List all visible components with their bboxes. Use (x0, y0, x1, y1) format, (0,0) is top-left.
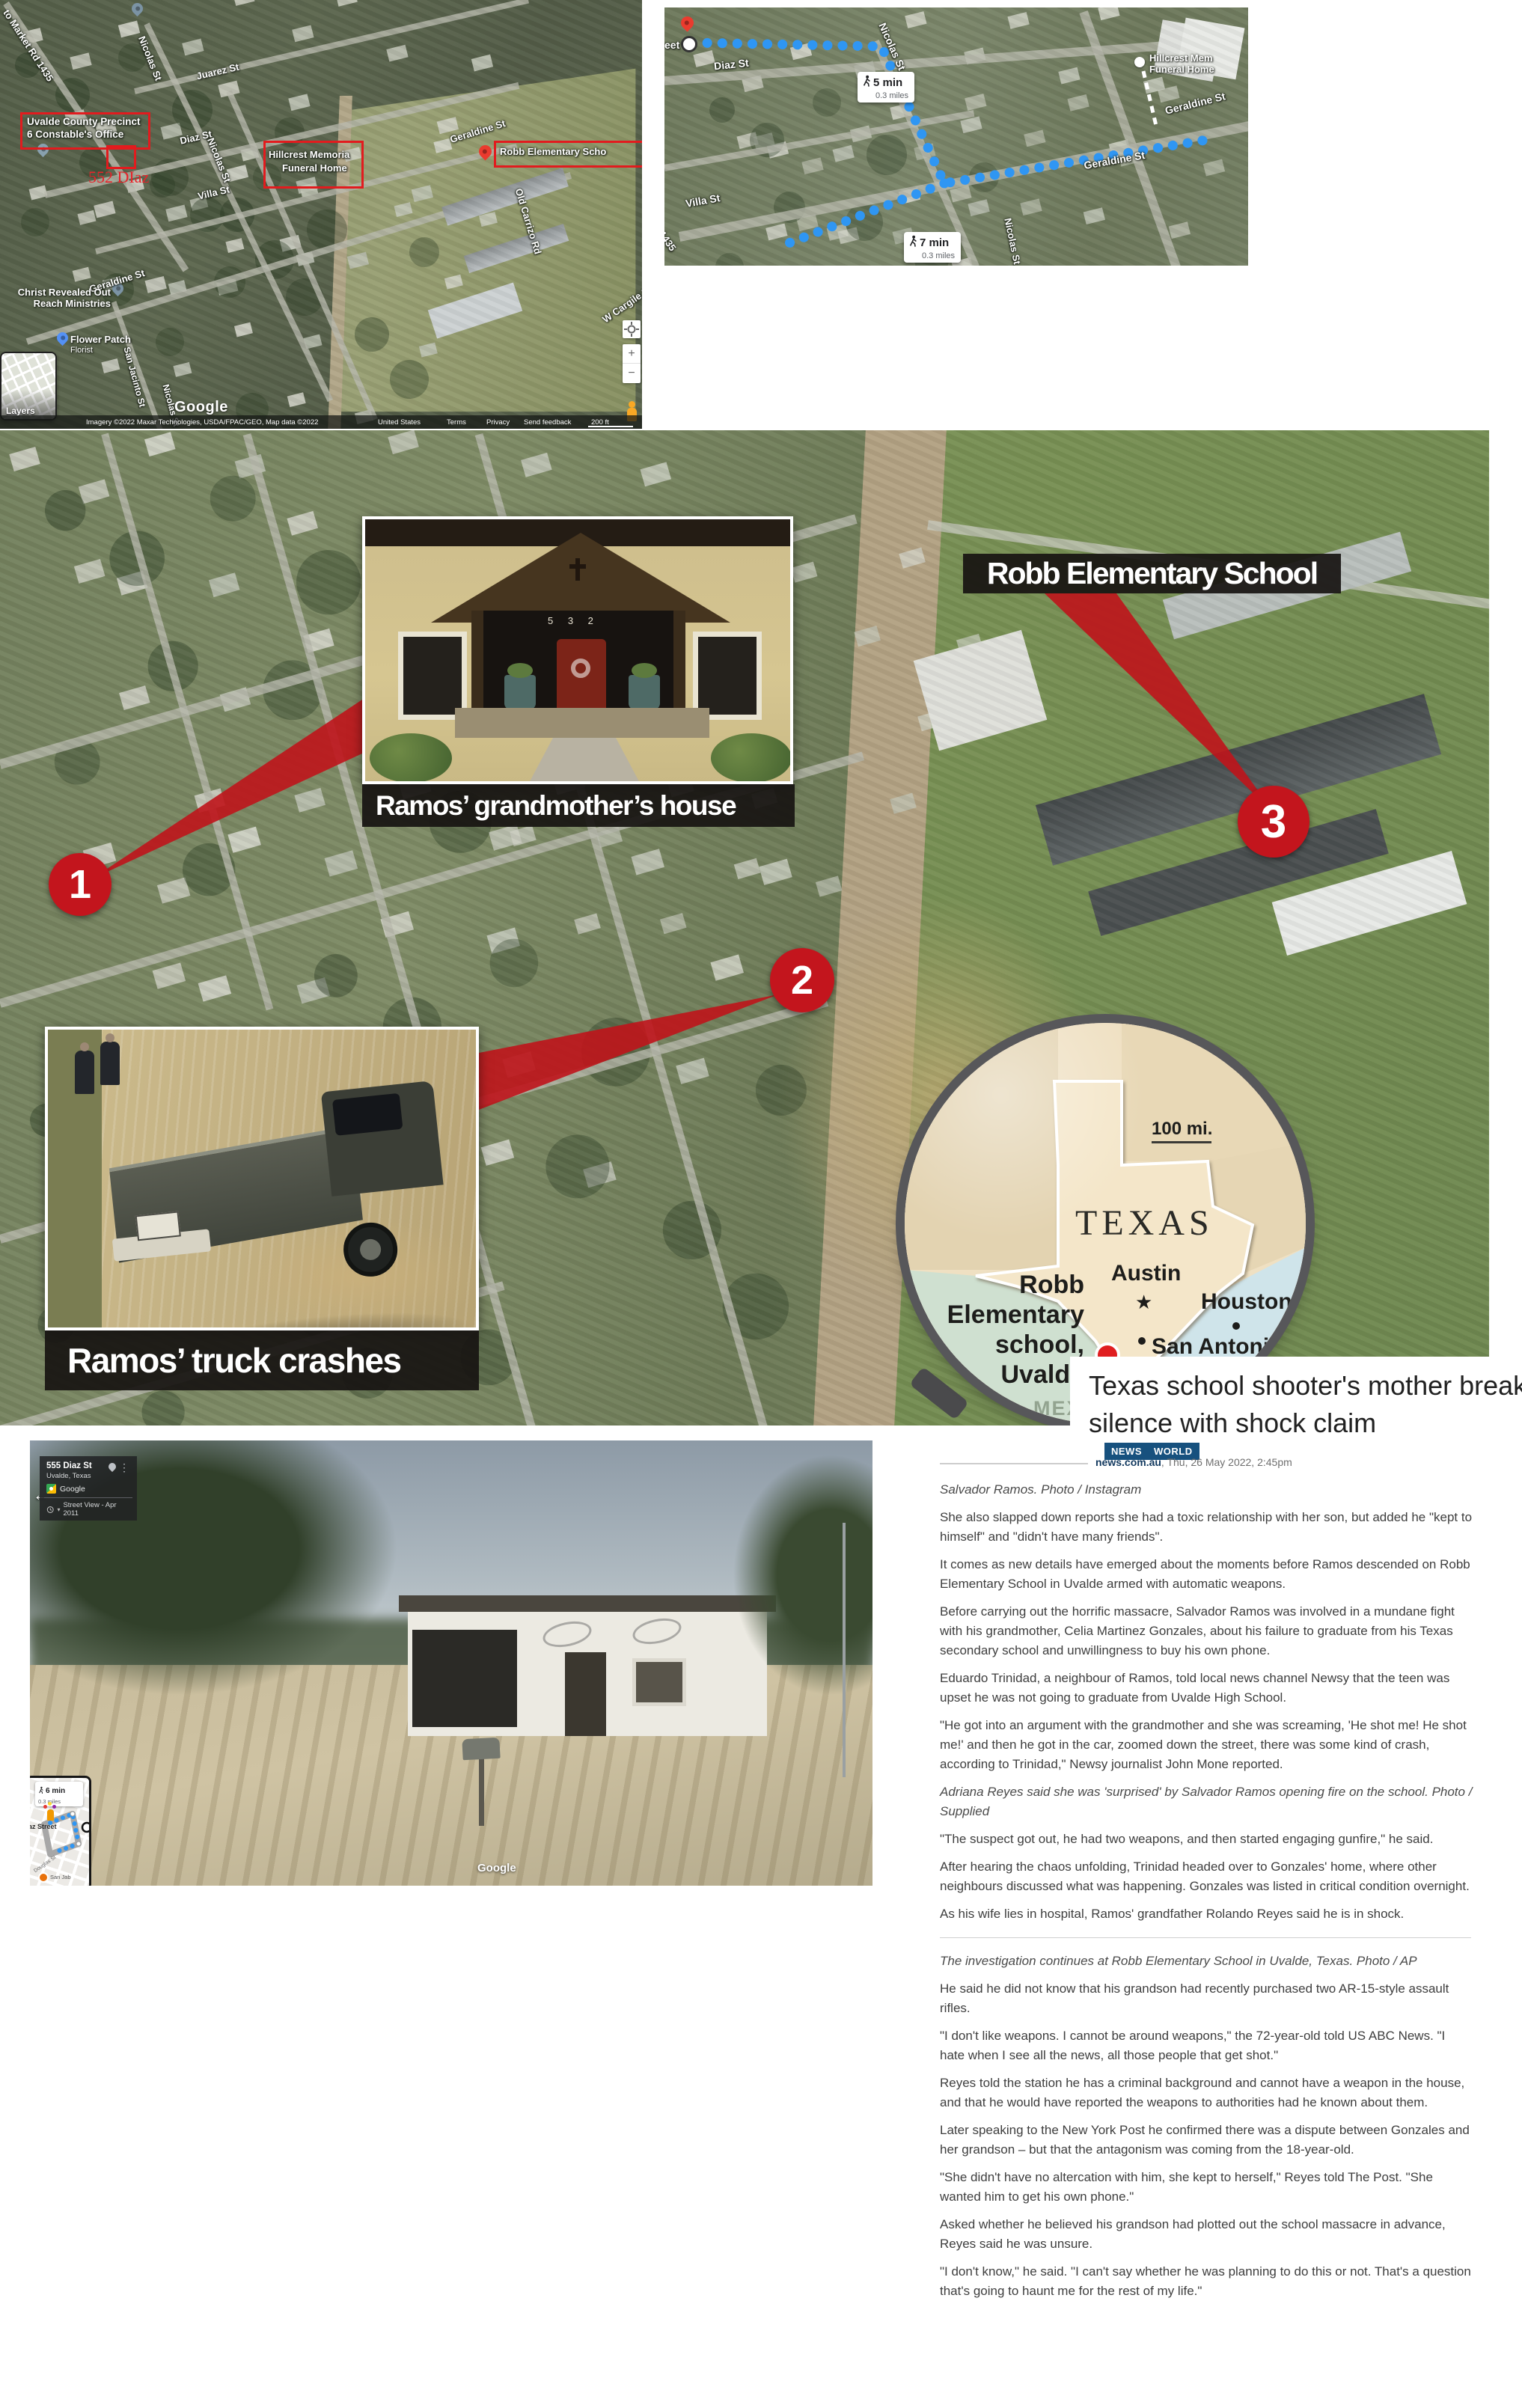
history-chevron-icon[interactable]: ▾ (57, 1506, 60, 1513)
street-view-date: Street View - Apr 2011 (63, 1501, 130, 1518)
window (693, 632, 762, 720)
feedback-link[interactable]: Send feedback (524, 418, 571, 427)
street-view-photo[interactable]: ← 555 Diaz St Uvalde, Texas ⋮ Google ▾ S… (30, 1440, 872, 1886)
walk-time: 6 min (46, 1787, 65, 1795)
article-divider (940, 1937, 1471, 1938)
utility-pole (843, 1523, 846, 1777)
address-subtitle: Uvalde, Texas (46, 1472, 130, 1480)
house-number: 5 3 2 (548, 615, 599, 626)
houston-label: Houston (1201, 1289, 1292, 1315)
wreath-decoration (571, 658, 590, 678)
walk-time-badge-5min[interactable]: 5 min 0.3 miles (858, 72, 914, 103)
partial-street-label: eet (664, 39, 679, 51)
planter (504, 675, 536, 709)
license-plate (135, 1211, 181, 1241)
photo-caption: Salvador Ramos. Photo / Instagram (940, 1480, 1473, 1500)
cross-decoration (575, 558, 580, 581)
flower-patch-label: Flower Patch Florist (70, 334, 131, 356)
my-location-button[interactable] (623, 320, 641, 338)
planter (629, 675, 660, 709)
hillcrest-line1: Hillcrest Memoria (269, 149, 349, 160)
article-paragraph: As his wife lies in hospital, Ramos' gra… (940, 1904, 1473, 1924)
street-view-info-card: 555 Diaz St Uvalde, Texas ⋮ Google ▾ Str… (40, 1456, 137, 1521)
card-divider (44, 1497, 132, 1498)
minimap-poi-label: San Jab (50, 1874, 71, 1880)
school-callout-text: Robb Elementary School (987, 556, 1317, 591)
article-paragraph: "I don't like weapons. I cannot be aroun… (940, 2026, 1473, 2065)
photo-detail (412, 1630, 517, 1727)
grandmother-house-box (106, 145, 136, 169)
google-watermark: Google (477, 1862, 516, 1874)
pegman-icon[interactable] (47, 1809, 54, 1821)
page: to Market Rd 1435 Nicolas St Juarez St D… (0, 0, 1522, 2408)
robb-school-box-label: Robb Elementary Scho (500, 146, 606, 157)
police-officer (75, 1051, 94, 1094)
walk-distance: 0.3 miles (38, 1798, 80, 1805)
layers-label: Layers (6, 406, 35, 416)
constable-office-line2: 6 Constable's Office (27, 129, 123, 140)
zoom-in-button[interactable]: + (623, 344, 641, 364)
marker-3: 3 (1238, 786, 1309, 858)
walking-route-path (664, 7, 1248, 266)
photo-detail (711, 733, 792, 783)
photo-detail (632, 1658, 686, 1706)
photo-detail (455, 708, 709, 738)
grandmother-callout-label: Ramos’ grandmother’s house (362, 784, 795, 827)
walk-distance: 0.3 miles (922, 251, 955, 260)
route-start-point (681, 36, 697, 52)
article-paragraph: Asked whether he believed his grandson h… (940, 2215, 1473, 2254)
photo-detail (673, 611, 685, 712)
walk-time-badge-7min[interactable]: 7 min 0.3 miles (904, 232, 961, 263)
inset-state-label: TEXAS (1075, 1203, 1214, 1244)
address-552-label: 552 DIaz (88, 168, 149, 187)
school-callout-label: Robb Elementary School (963, 554, 1341, 593)
article-paragraph: "The suspect got out, he had two weapons… (940, 1830, 1473, 1849)
source-name[interactable]: news.com.au (1095, 1456, 1161, 1468)
privacy-link[interactable]: Privacy (486, 418, 510, 427)
inset-scale-bar (1152, 1141, 1211, 1143)
time-history-icon (46, 1506, 54, 1514)
map-texture (0, 0, 642, 429)
zoom-out-button[interactable]: − (623, 364, 641, 382)
street-view-house (408, 1609, 767, 1736)
walk-time: 7 min (920, 236, 949, 249)
christ-line2: Reach Ministries (6, 298, 111, 309)
source-dateline: , Thu, 26 May 2022, 2:45pm (1161, 1456, 1292, 1468)
region-label: United States (378, 418, 421, 427)
photo-caption: The investigation continues at Robb Elem… (940, 1952, 1473, 1971)
christ-ministries-label: Christ Revealed Out Reach Ministries (6, 287, 111, 309)
grandmother-callout-text: Ramos’ grandmother’s house (376, 790, 736, 822)
marker-1: 1 (49, 853, 111, 916)
san-antonio-label: San Antonio (1152, 1334, 1283, 1360)
article-paragraph: "I don't know," he said. "I can't say wh… (940, 2262, 1473, 2301)
photo-detail (565, 1652, 606, 1736)
article-paragraph: Eduardo Trinidad, a neighbour of Ramos, … (940, 1669, 1473, 1708)
article-paragraph: He said he did not know that his grandso… (940, 1979, 1473, 2018)
marker-1-number: 1 (69, 861, 91, 908)
article-paragraph: She also slapped down reports she had a … (940, 1508, 1473, 1547)
marker-2-number: 2 (791, 957, 813, 1003)
pegman-icon (629, 401, 635, 408)
hillcrest-poi-dot (1134, 57, 1145, 67)
street-view-logo-icon (46, 1484, 56, 1494)
balloon-icon (43, 1805, 47, 1809)
inset-robb-line4: Uvalde (935, 1360, 1084, 1390)
article-paragraph: "She didn't have no altercation with him… (940, 2168, 1473, 2207)
photo-caption: Adriana Reyes said she was 'surprised' b… (940, 1782, 1473, 1821)
minimap-street-label: az Street (30, 1823, 57, 1830)
marker-2: 2 (770, 948, 834, 1012)
truck-callout-text: Ramos’ truck crashes (67, 1340, 401, 1381)
photo-detail (431, 533, 730, 623)
google-logo[interactable]: Google (174, 399, 228, 416)
graffiti (540, 1617, 593, 1651)
hillcrest-line2: Funeral Home (282, 162, 347, 174)
police-officer (100, 1042, 120, 1085)
photo-detail (528, 738, 641, 784)
inset-robb-label: Robb Elementary school, Uvalde (935, 1270, 1084, 1390)
walker-icon (38, 1785, 44, 1798)
annotated-aerial-map: Robb Elementary School 5 3 2 Ramos’ gran… (0, 430, 1489, 1425)
article-paragraph: Reyes told the station he has a criminal… (940, 2074, 1473, 2112)
article-paragraph: Before carrying out the horrific massacr… (940, 1602, 1473, 1660)
balloon-icon (52, 1805, 56, 1809)
inset-robb-line3: school, (935, 1330, 1084, 1360)
marker-3-number: 3 (1261, 795, 1286, 849)
austin-label: Austin (1111, 1261, 1181, 1286)
walk-time-badge-6min: 6 min 0.3 miles (35, 1782, 83, 1806)
grandmother-house-photo: 5 3 2 (362, 516, 793, 784)
austin-star-icon: ★ (1135, 1291, 1152, 1314)
zoom-control[interactable]: + − (623, 344, 641, 383)
walk-time: 5 min (873, 76, 902, 89)
street-view-minimap[interactable]: 6 min 0.3 miles az Street Douglas St San… (30, 1776, 91, 1886)
hillcrest-poi-line1: Hillcrest Mem (1149, 52, 1214, 64)
constable-office-box: Uvalde County Precinct 6 Constable's Off… (20, 112, 150, 150)
brand-label: Google (60, 1485, 85, 1494)
balloon-icon (48, 1802, 52, 1806)
hillcrest-box: Hillcrest Memoria Funeral Home (263, 141, 364, 189)
flower-line1: Flower Patch (70, 334, 131, 345)
article-paragraph: It comes as new details have emerged abo… (940, 1555, 1473, 1594)
truck-callout-label: Ramos’ truck crashes (45, 1330, 479, 1390)
photo-detail (370, 733, 452, 783)
houston-dot (1232, 1322, 1240, 1330)
article-body: Salvador Ramos. Photo / Instagram She al… (940, 1480, 1473, 2309)
walking-route-map[interactable]: eet Diaz St Nicolas St Nicolas St Villa … (664, 7, 1248, 266)
article-paragraph: Later speaking to the New York Post he c… (940, 2121, 1473, 2160)
source-row: news.com.au, Thu, 26 May 2022, 2:45pm (1095, 1456, 1292, 1468)
walk-distance: 0.3 miles (875, 91, 908, 100)
imagery-attribution: Imagery ©2022 Maxar Technologies, USDA/F… (86, 418, 318, 427)
layers-control[interactable]: Layers (0, 352, 57, 421)
orange-poi-icon (38, 1872, 49, 1883)
address-title: 555 Diaz St (46, 1461, 130, 1470)
photo-detail (471, 611, 483, 712)
headline-line2: silence with shock claim (1089, 1405, 1522, 1442)
terms-link[interactable]: Terms (447, 418, 466, 427)
more-menu-icon[interactable]: ⋮ (119, 1461, 129, 1474)
map-attribution-bar: Imagery ©2022 Maxar Technologies, USDA/F… (0, 415, 642, 429)
flower-line2: Florist (70, 345, 131, 356)
crashed-truck (103, 1078, 458, 1300)
hillcrest-poi-label: Hillcrest Mem Funeral Home (1149, 52, 1214, 75)
inset-robb-line1: Robb (935, 1270, 1084, 1300)
satellite-map-overview[interactable]: to Market Rd 1435 Nicolas St Juarez St D… (0, 0, 642, 429)
san-antonio-dot (1138, 1337, 1146, 1345)
article-paragraph: After hearing the chaos unfolding, Trini… (940, 1857, 1473, 1896)
christ-line1: Christ Revealed Out (6, 287, 111, 298)
mailbox-post (479, 1755, 484, 1826)
truck-window (332, 1093, 403, 1136)
walker-icon (862, 75, 872, 91)
graffiti (630, 1614, 683, 1648)
hillcrest-poi-line2: Funeral Home (1149, 64, 1214, 75)
window (398, 632, 467, 720)
locate-icon (623, 320, 641, 338)
inset-scale-label: 100 mi. (1152, 1119, 1212, 1140)
constable-office-line1: Uvalde County Precinct (27, 116, 141, 127)
walker-icon (908, 235, 918, 251)
truck-crash-photo (45, 1027, 479, 1330)
headline-box: Texas school shooter's mother breaks sil… (1070, 1357, 1522, 1440)
article-paragraph: "He got into an argument with the grandm… (940, 1716, 1473, 1774)
photo-detail (399, 1595, 776, 1612)
inset-robb-line2: Elementary (935, 1300, 1084, 1330)
robb-school-box: Robb Elementary Scho (494, 141, 642, 168)
headline-line1: Texas school shooter's mother breaks (1089, 1367, 1522, 1405)
scale-bar (588, 426, 633, 427)
mailbox (462, 1738, 500, 1761)
source-divider-line (940, 1463, 1088, 1464)
